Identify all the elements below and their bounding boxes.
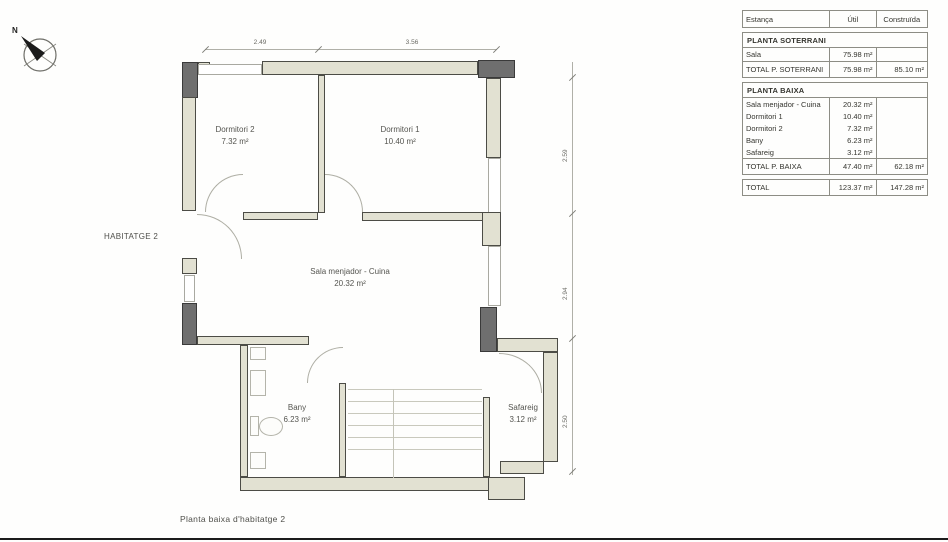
room-label-safareig: Safareig 3.12 m² <box>493 402 553 426</box>
wall-segment <box>362 212 483 221</box>
door-arc <box>499 353 542 393</box>
table-row: Estança Útil Construïda <box>743 11 927 27</box>
room-label-dormitori-1: Dormitori 1 10.40 m² <box>350 124 450 148</box>
header-construida: Construïda <box>877 11 927 27</box>
cell-constructed <box>877 48 927 61</box>
room-area: 6.23 m² <box>267 414 327 426</box>
wall-segment <box>262 61 478 75</box>
cell-util: 47.40 m² <box>830 159 877 174</box>
plan-caption: Planta baixa d'habitatge 2 <box>180 514 285 524</box>
table-row: Sala menjador - Cuina 20.32 m² <box>743 98 927 110</box>
unit-label: HABITATGE 2 <box>104 232 158 241</box>
area-table: Estança Útil Construïda PLANTA SOTERRANI… <box>742 10 928 200</box>
wall-segment <box>197 336 309 345</box>
cell-label: TOTAL P. SOTERRANI <box>743 62 830 77</box>
wall-segment <box>318 75 325 213</box>
section-title: PLANTA SOTERRANI <box>743 36 927 45</box>
room-name: Dormitori 2 <box>190 124 280 136</box>
grand-total-block: TOTAL 123.37 m² 147.28 m² <box>742 179 928 196</box>
room-name: Bany <box>267 402 327 414</box>
sink-icon <box>250 347 266 360</box>
total-row: TOTAL P. BAIXA 47.40 m² 62.18 m² <box>743 158 927 174</box>
cell-util: 75.98 m² <box>830 62 877 77</box>
room-area: 7.32 m² <box>190 136 280 148</box>
dimension-tick <box>493 46 500 53</box>
wall-segment <box>486 78 501 158</box>
section-title-row: PLANTA BAIXA <box>743 83 927 98</box>
cell-constructed <box>877 134 927 146</box>
table-row: Sala 75.98 m² <box>743 48 927 61</box>
room-label-sala-menjador: Sala menjador - Cuina 20.32 m² <box>280 266 420 290</box>
cell-util: 75.98 m² <box>830 48 877 61</box>
door-arc <box>205 174 243 212</box>
header-estanca: Estança <box>743 11 830 27</box>
cell-util: 6.23 m² <box>830 134 877 146</box>
cell-label: Sala menjador - Cuina <box>743 98 830 110</box>
dimension-label: 2.94 <box>562 260 569 300</box>
dimension-line <box>572 62 573 475</box>
wall-segment <box>243 212 318 220</box>
dimension-line <box>205 49 497 50</box>
cell-util: 3.12 m² <box>830 146 877 158</box>
room-area: 10.40 m² <box>350 136 450 148</box>
door-arc <box>197 214 242 259</box>
sink-icon <box>250 452 266 469</box>
wall-segment <box>500 461 544 474</box>
cell-util: 10.40 m² <box>830 110 877 122</box>
table-header: Estança Útil Construïda <box>742 10 928 28</box>
room-name: Safareig <box>493 402 553 414</box>
room-label-bany: Bany 6.23 m² <box>267 402 327 426</box>
corner-column <box>182 62 198 98</box>
cell-label: Bany <box>743 134 830 146</box>
dimension-label: 3.56 <box>390 39 434 46</box>
door-arc <box>325 174 363 212</box>
room-area: 20.32 m² <box>280 278 420 290</box>
window <box>198 64 262 75</box>
room-area: 3.12 m² <box>493 414 553 426</box>
section-title-row: PLANTA SOTERRANI <box>743 33 927 48</box>
sink-icon <box>250 370 266 396</box>
cell-util: 123.37 m² <box>830 180 877 195</box>
cell-label: TOTAL P. BAIXA <box>743 159 830 174</box>
cell-constructed: 147.28 m² <box>877 180 927 195</box>
wall-segment <box>482 212 501 246</box>
floor-plan-sheet: N <box>0 0 948 542</box>
cell-constructed: 85.10 m² <box>877 62 927 77</box>
wall-segment <box>488 477 525 500</box>
table-row: Dormitori 2 7.32 m² <box>743 122 927 134</box>
wall-segment <box>240 345 248 477</box>
cell-constructed <box>877 146 927 158</box>
cell-label: Safareig <box>743 146 830 158</box>
table-row: Bany 6.23 m² <box>743 134 927 146</box>
cell-label: Dormitori 1 <box>743 110 830 122</box>
pillar <box>182 258 197 274</box>
wall-segment <box>483 397 490 477</box>
corner-column <box>182 303 197 345</box>
dimension-label: 2.59 <box>562 122 569 162</box>
room-label-dormitori-2: Dormitori 2 7.32 m² <box>190 124 280 148</box>
wall-segment <box>497 338 558 352</box>
window <box>488 246 501 306</box>
staircase <box>348 389 482 453</box>
section-title: PLANTA BAIXA <box>743 86 927 95</box>
room-name: Sala menjador - Cuina <box>280 266 420 278</box>
window <box>488 158 501 213</box>
staircase-divider <box>393 389 394 478</box>
cell-label: Dormitori 2 <box>743 122 830 134</box>
section-soterrani: PLANTA SOTERRANI Sala 75.98 m² TOTAL P. … <box>742 32 928 78</box>
section-baixa: PLANTA BAIXA Sala menjador - Cuina 20.32… <box>742 82 928 175</box>
cell-label: Sala <box>743 48 830 61</box>
table-row: Safareig 3.12 m² <box>743 146 927 158</box>
dimension-label: 2.50 <box>562 388 569 428</box>
cell-constructed <box>877 98 927 110</box>
cell-constructed <box>877 110 927 122</box>
scan-edge-artifact <box>0 538 948 540</box>
cell-label: TOTAL <box>743 180 830 195</box>
wall-segment <box>339 383 346 477</box>
cell-constructed <box>877 122 927 134</box>
dimension-label: 2.49 <box>238 39 282 46</box>
window <box>184 275 195 302</box>
total-row: TOTAL 123.37 m² 147.28 m² <box>743 180 927 195</box>
total-row: TOTAL P. SOTERRANI 75.98 m² 85.10 m² <box>743 61 927 77</box>
door-arc <box>307 347 343 383</box>
wall-segment <box>240 477 490 491</box>
table-row: Dormitori 1 10.40 m² <box>743 110 927 122</box>
corner-column <box>478 60 515 78</box>
wall-segment <box>182 97 196 211</box>
header-util: Útil <box>830 11 877 27</box>
corner-column <box>480 307 497 352</box>
cell-util: 20.32 m² <box>830 98 877 110</box>
room-name: Dormitori 1 <box>350 124 450 136</box>
cell-util: 7.32 m² <box>830 122 877 134</box>
toilet-icon <box>250 416 259 436</box>
cell-constructed: 62.18 m² <box>877 159 927 174</box>
